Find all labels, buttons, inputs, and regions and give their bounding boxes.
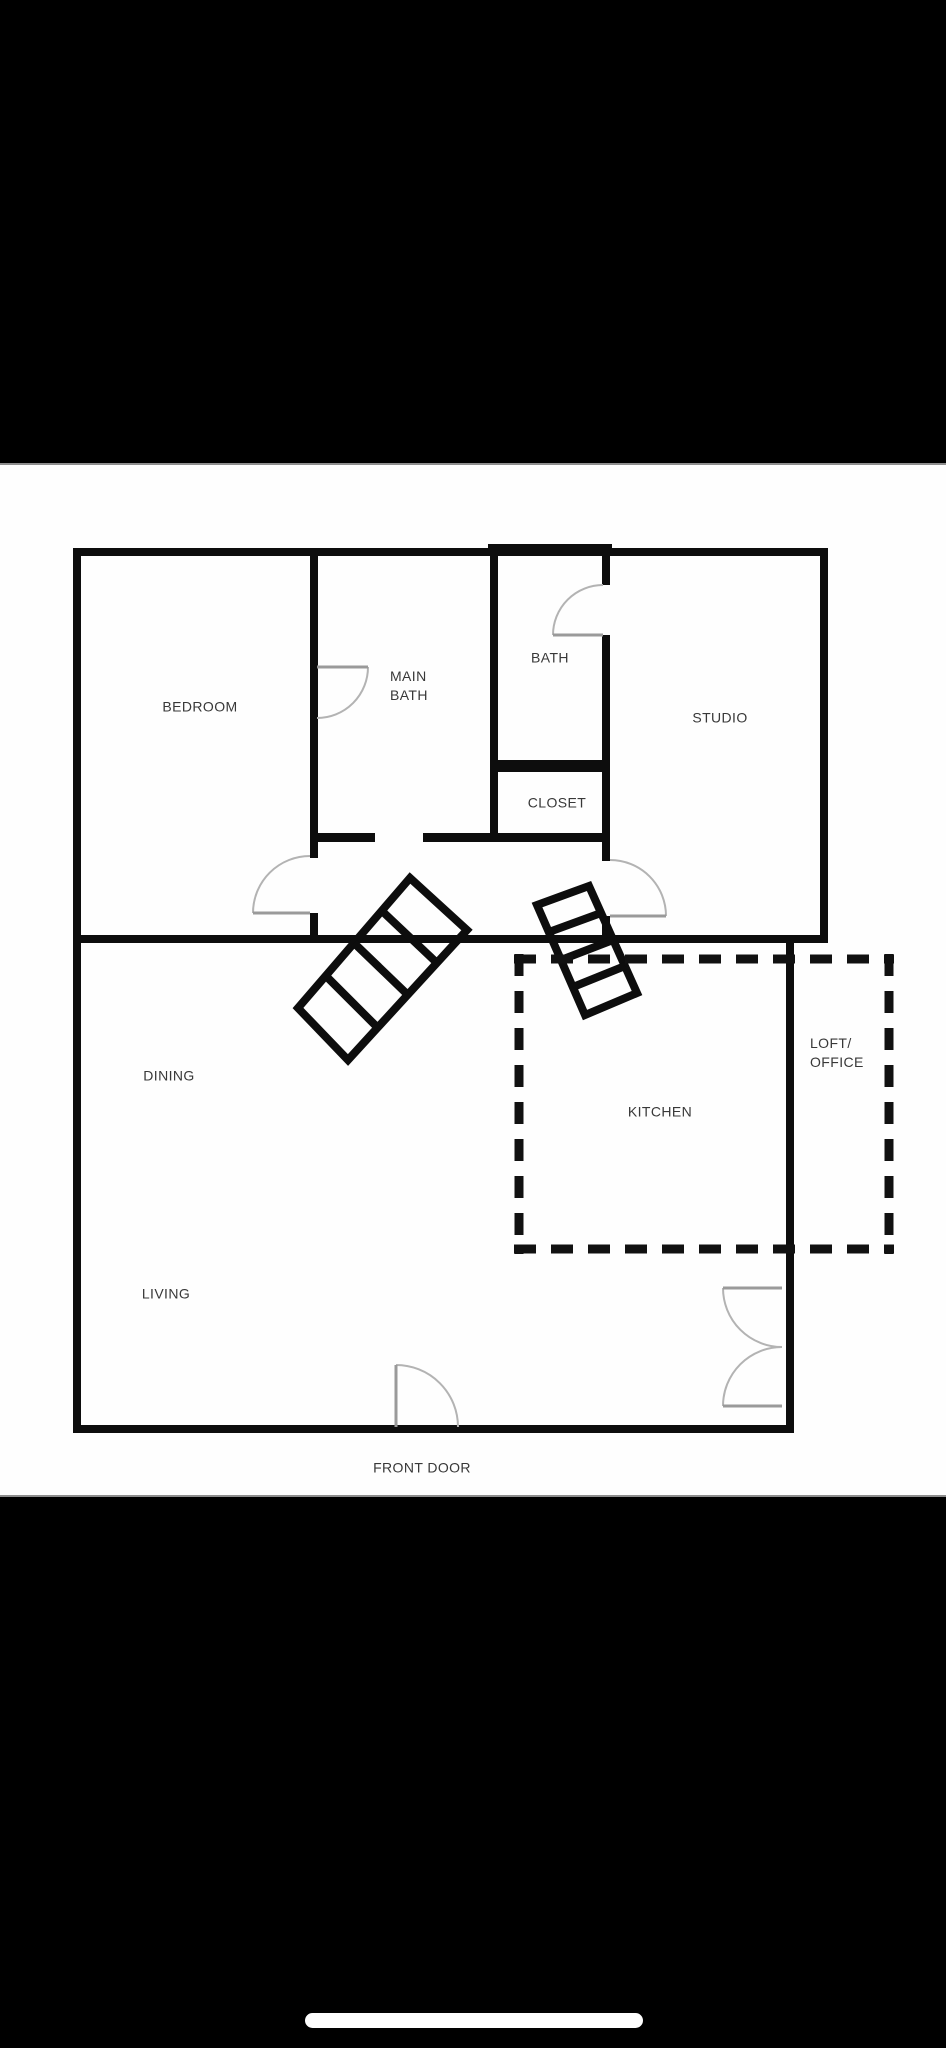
label-loft-office: LOFT/ OFFICE — [810, 1034, 864, 1072]
wall-mid-divider — [73, 935, 828, 943]
label-kitchen: KITCHEN — [628, 1103, 692, 1122]
studio-door-arc — [610, 860, 666, 916]
label-studio: STUDIO — [692, 709, 747, 728]
double-door-bottom-arc — [723, 1347, 782, 1406]
wall-right-upper — [820, 548, 828, 943]
wall-left-lower — [73, 935, 81, 1433]
wall-bottom — [73, 1425, 794, 1433]
double-door-top-arc — [723, 1288, 782, 1347]
wall-hallway-top-b — [423, 833, 610, 842]
kitchen-dashed-outline — [514, 954, 894, 1254]
label-bedroom: BEDROOM — [162, 698, 237, 717]
wall-bath-right-b — [602, 635, 610, 840]
wall-bath-left — [490, 544, 498, 840]
bedroom-door-arc — [253, 856, 310, 913]
wall-bath-right-a — [602, 544, 610, 585]
stairs-left-flight — [298, 878, 467, 1060]
stairs — [298, 878, 637, 1060]
stairs-right-flight — [537, 886, 637, 1015]
bath-door-arc — [553, 585, 603, 635]
wall-bath-closet-divider — [490, 760, 610, 772]
phone-screenshot: BEDROOM MAIN BATH BATH STUDIO CLOSET DIN… — [0, 0, 946, 2048]
wall-bath-top-raised — [488, 544, 612, 552]
label-closet: CLOSET — [528, 794, 586, 813]
wall-left-upper — [73, 548, 81, 943]
home-indicator[interactable] — [305, 2013, 643, 2028]
wall-top — [73, 548, 828, 556]
floor-plan-svg — [0, 0, 946, 2048]
front-door-arc — [396, 1365, 458, 1427]
label-dining: DINING — [143, 1067, 194, 1086]
wall-bedroom-divider-upper — [310, 548, 318, 858]
wall-hallway-top-a — [310, 833, 375, 842]
wall-right-lower — [786, 935, 794, 1433]
label-main-bath: MAIN BATH — [390, 667, 428, 705]
label-bath: BATH — [531, 649, 569, 668]
main-bath-door-arc — [317, 667, 368, 718]
label-front-door: FRONT DOOR — [373, 1459, 471, 1478]
label-living: LIVING — [142, 1285, 190, 1304]
wall-studio-left-a — [602, 840, 610, 861]
